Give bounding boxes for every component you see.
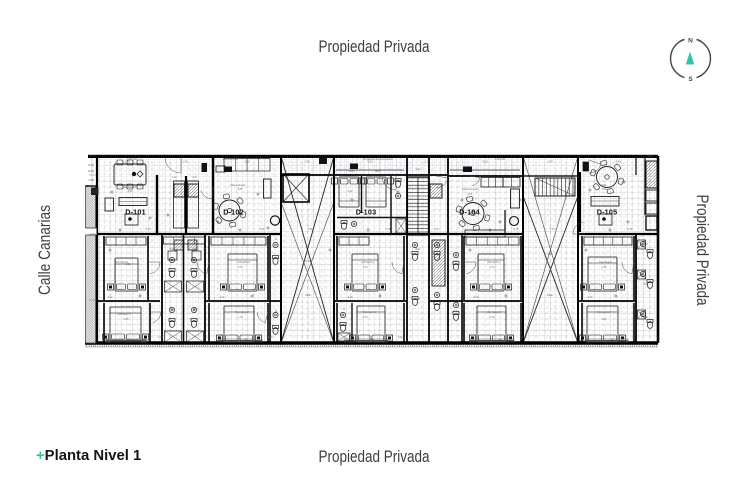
svg-text:Dormitorio 1: Dormitorio 1: [115, 261, 129, 264]
svg-text:2.70: 2.70: [363, 316, 368, 319]
svg-text:2.70: 2.70: [490, 316, 495, 319]
svg-text:Bañ.: Bañ.: [170, 308, 175, 311]
svg-text:Bañ.: Bañ.: [416, 298, 421, 301]
svg-text:Dormitorio 1: Dormitorio 1: [487, 261, 501, 264]
svg-text:3.10: 3.10: [220, 296, 225, 299]
svg-text:5.00: 5.00: [548, 253, 553, 256]
svg-text:0.15: 0.15: [260, 228, 265, 231]
svg-text:3.10: 3.10: [588, 296, 593, 299]
svg-text:Patio: Patio: [305, 294, 311, 297]
svg-text:3.10: 3.10: [108, 296, 113, 299]
svg-text:3.00: 3.00: [482, 160, 488, 164]
svg-text:4.05: 4.05: [238, 188, 243, 191]
svg-text:2.60: 2.60: [348, 190, 353, 193]
svg-text:Dormitorio 1: Dormitorio 1: [237, 261, 251, 264]
svg-text:2.45: 2.45: [602, 266, 607, 269]
svg-text:0.40: 0.40: [88, 169, 94, 173]
svg-text:Bañ.: Bañ.: [170, 248, 175, 251]
svg-text:sube: sube: [415, 168, 421, 171]
svg-text:1.60: 1.60: [88, 178, 94, 182]
svg-text:1.50: 1.50: [550, 228, 555, 231]
svg-text:D-104: D-104: [459, 208, 480, 217]
svg-text:0.40: 0.40: [88, 163, 94, 167]
svg-text:Bañ.: Bañ.: [644, 283, 649, 286]
svg-text:Sala-Comedor: Sala-Comedor: [462, 188, 478, 191]
svg-text:Dorm.: Dorm.: [349, 170, 356, 173]
svg-text:3.10: 3.10: [474, 296, 479, 299]
svg-text:Dormitorio 1: Dormitorio 1: [361, 261, 375, 264]
svg-text:1.20: 1.20: [158, 336, 163, 339]
svg-text:1.20 2.40: 1.20 2.40: [495, 158, 506, 161]
svg-text:2.70: 2.70: [238, 266, 243, 269]
svg-text:1.50: 1.50: [304, 160, 310, 164]
svg-text:2.70: 2.70: [238, 316, 243, 319]
svg-text:1.00: 1.00: [182, 160, 188, 164]
svg-text:Dormitorio 2: Dormitorio 2: [487, 311, 501, 314]
svg-text:0.15: 0.15: [628, 228, 633, 231]
svg-text:Coc.: Coc.: [193, 176, 198, 179]
svg-text:Bañ.: Bañ.: [454, 260, 459, 263]
svg-text:2.40: 2.40: [602, 318, 607, 321]
svg-text:1.50: 1.50: [547, 160, 553, 164]
svg-text:Bañ.: Bañ.: [194, 248, 199, 251]
svg-text:1.20 2.40 0.90: 1.20 2.40 0.90: [222, 158, 238, 161]
svg-text:Coc.: Coc.: [173, 176, 178, 179]
svg-text:0.15: 0.15: [514, 228, 519, 231]
svg-text:N: N: [688, 38, 693, 45]
svg-text:D-105: D-105: [597, 208, 618, 217]
svg-text:Sala-Comedor: Sala-Comedor: [230, 184, 246, 187]
svg-text:1.20: 1.20: [268, 336, 273, 339]
svg-text:D-102: D-102: [223, 208, 244, 217]
svg-text:2.70: 2.70: [490, 266, 495, 269]
svg-text:1.20: 1.20: [398, 336, 403, 339]
svg-text:4.50: 4.50: [602, 188, 607, 191]
svg-text:Bañ.: Bañ.: [644, 316, 649, 319]
svg-text:3.40: 3.40: [615, 160, 621, 164]
svg-text:Dormitorio 2: Dormitorio 2: [597, 311, 611, 314]
svg-text:Bañ.: Bañ.: [644, 243, 649, 246]
svg-text:Dorm.: Dorm.: [375, 170, 382, 173]
svg-text:D-103: D-103: [356, 208, 377, 217]
svg-text:1.20: 1.20: [522, 336, 527, 339]
svg-text:0.90 1.80: 0.90 1.80: [127, 158, 138, 161]
svg-text:4.05: 4.05: [468, 193, 473, 196]
svg-text:1.10: 1.10: [424, 160, 430, 164]
svg-text:Dormitorio 1: Dormitorio 1: [599, 261, 613, 264]
svg-text:1.50: 1.50: [308, 228, 313, 231]
svg-text:Bañ.: Bañ.: [454, 310, 459, 313]
svg-text:2.70: 2.70: [363, 266, 368, 269]
svg-text:Coc.: Coc.: [435, 228, 440, 231]
svg-text:S: S: [688, 76, 693, 83]
svg-text:3.95: 3.95: [128, 190, 133, 193]
svg-text:Proyección del piso superior: Proyección del piso superior: [363, 158, 393, 161]
svg-text:Dormitorio 2: Dormitorio 2: [235, 311, 249, 314]
svg-text:Bañ.: Bañ.: [416, 248, 421, 251]
svg-text:Dormitorio 2: Dormitorio 2: [117, 313, 131, 316]
svg-text:0.15: 0.15: [386, 228, 391, 231]
svg-text:Bañ.: Bañ.: [194, 308, 199, 311]
svg-text:2.55: 2.55: [124, 318, 129, 321]
svg-text:Sala: Sala: [602, 184, 607, 187]
svg-text:0.15: 0.15: [146, 228, 151, 231]
svg-text:Patio: Patio: [547, 294, 553, 297]
svg-text:Dormitorio 2: Dormitorio 2: [363, 311, 377, 314]
svg-text:Coc.: Coc.: [648, 155, 653, 158]
svg-text:3.00: 3.00: [244, 160, 250, 164]
svg-text:5.30: 5.30: [306, 260, 311, 263]
svg-text:3.10: 3.10: [348, 296, 353, 299]
svg-text:D-101: D-101: [125, 208, 146, 217]
svg-text:Sala-Comedor: Sala-Comedor: [122, 186, 138, 189]
